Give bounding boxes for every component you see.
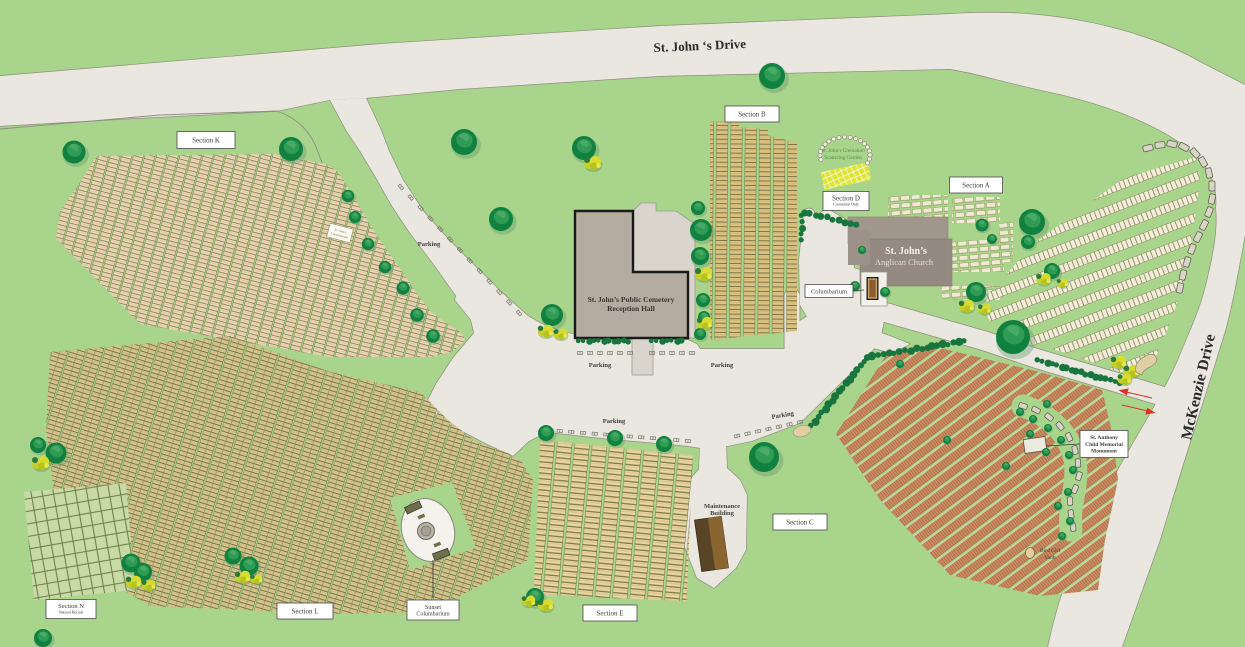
svg-text:Vault: Vault	[1044, 555, 1056, 561]
svg-text:Section L: Section L	[291, 608, 318, 616]
svg-text:Parking: Parking	[589, 362, 612, 369]
svg-text:Columbarium: Columbarium	[416, 611, 450, 617]
svg-text:Natural Burials: Natural Burials	[59, 610, 84, 615]
svg-text:Section A: Section A	[962, 181, 989, 189]
svg-text:Building: Building	[710, 510, 735, 517]
svg-text:St. John’s: St. John’s	[885, 246, 927, 257]
svg-text:Section C: Section C	[786, 519, 814, 527]
svg-text:Section E: Section E	[596, 610, 623, 618]
svg-text:Scattering Garden: Scattering Garden	[824, 155, 862, 161]
svg-text:St. John’s Cremation: St. John’s Cremation	[821, 148, 865, 154]
svg-text:Maintenance: Maintenance	[704, 503, 740, 510]
svg-text:Sunset: Sunset	[425, 605, 441, 611]
svg-text:Parking: Parking	[418, 241, 441, 248]
svg-text:St. John’s Public Cemetery: St. John’s Public Cemetery	[588, 295, 675, 304]
svg-text:Section K: Section K	[192, 136, 220, 144]
svg-text:St. Anthony: St. Anthony	[1090, 435, 1118, 441]
svg-text:Bird Girl: Bird Girl	[1040, 548, 1060, 554]
svg-text:Monument: Monument	[1091, 449, 1117, 455]
svg-text:Columbarium: Columbarium	[811, 288, 847, 295]
svg-text:Section B: Section B	[738, 111, 766, 119]
svg-text:Cremation Only: Cremation Only	[833, 202, 859, 207]
svg-text:Parking: Parking	[603, 418, 626, 425]
svg-text:Reception Hall: Reception Hall	[607, 304, 655, 313]
svg-text:Parking: Parking	[711, 362, 734, 369]
svg-text:Child Memorial: Child Memorial	[1085, 442, 1123, 448]
svg-text:Anglican Church: Anglican Church	[875, 257, 934, 267]
